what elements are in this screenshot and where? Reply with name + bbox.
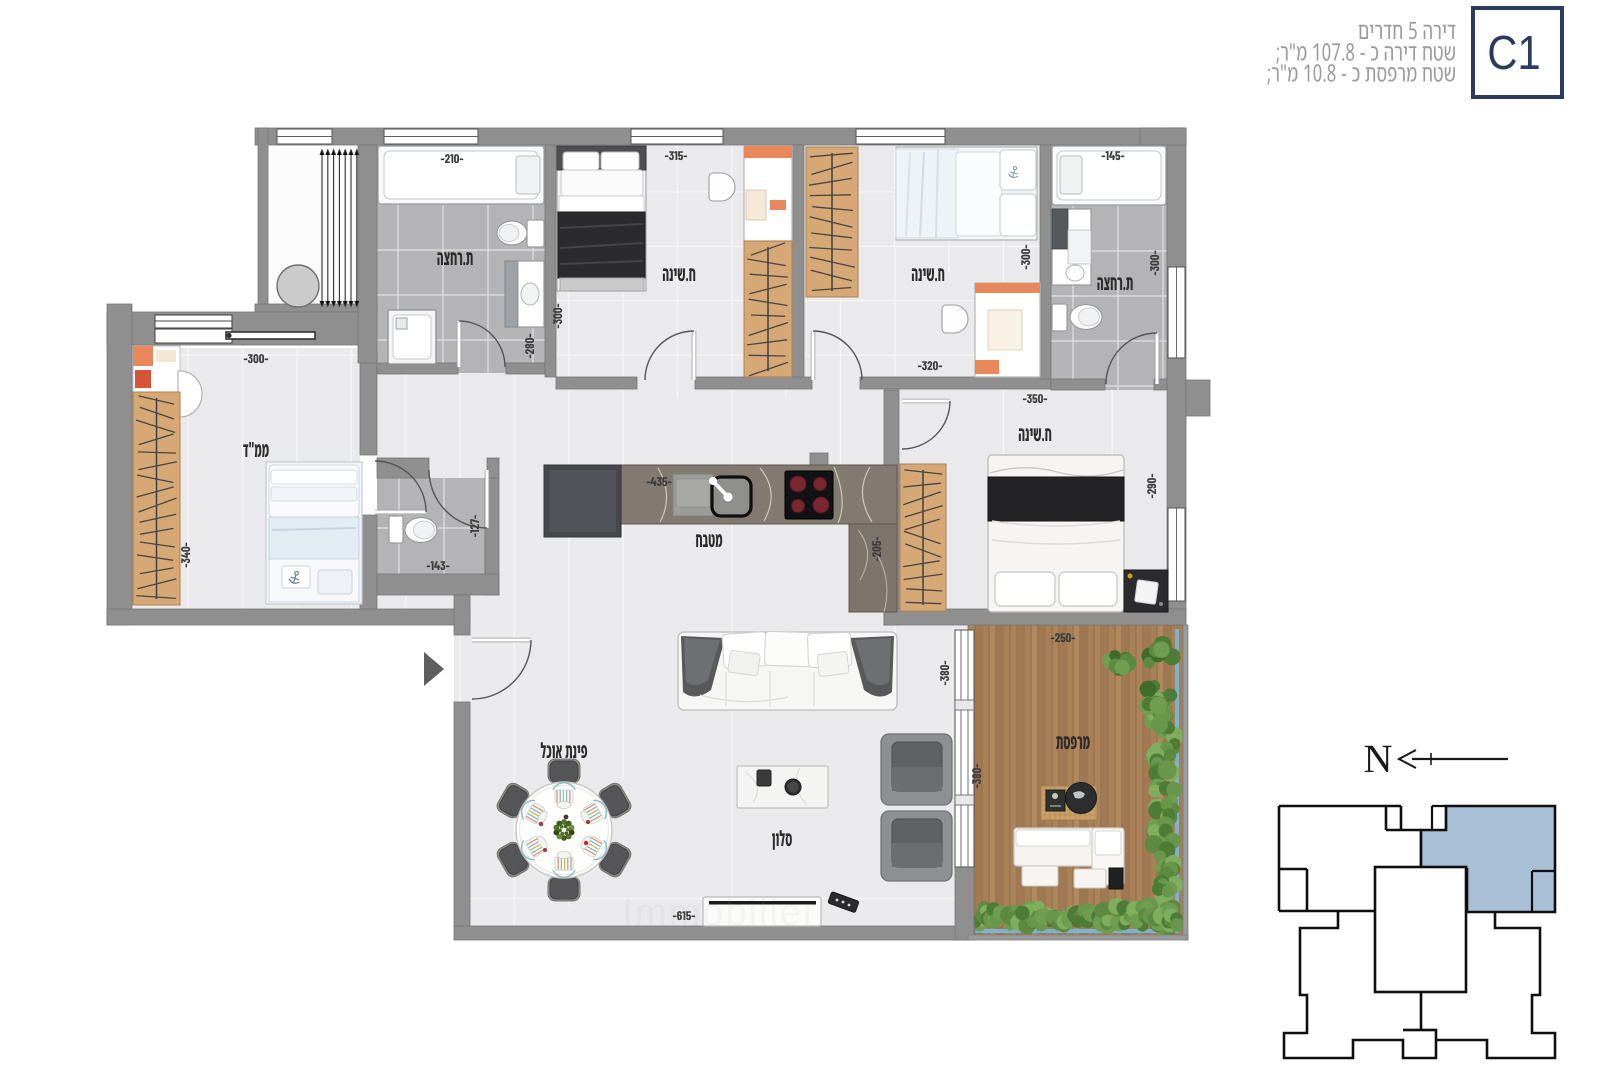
svg-text:Immobilier: Immobilier bbox=[622, 892, 817, 934]
